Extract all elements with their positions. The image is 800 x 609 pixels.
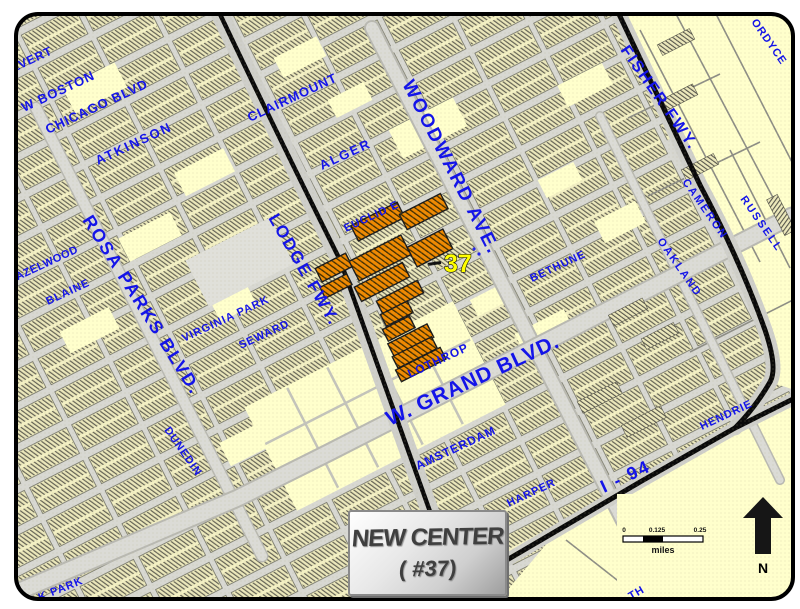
map-screenshot: 0 0.125 0.25 miles N LVERT W BOSTON CHIC… xyxy=(0,0,800,609)
map-title-line2: ( #37) xyxy=(398,556,458,583)
map-title-line1: NEW CENTER xyxy=(350,523,504,554)
area-number-marker: 37 xyxy=(444,250,472,278)
scale-tick-mid: 0.125 xyxy=(649,527,666,534)
scale-tick-0: 0 xyxy=(622,527,626,534)
scale-tick-max: 0.25 xyxy=(694,527,707,534)
map-title-box: NEW CENTER ( #37) xyxy=(348,510,507,596)
scale-unit-label: miles xyxy=(651,545,674,555)
north-label: N xyxy=(758,560,768,576)
